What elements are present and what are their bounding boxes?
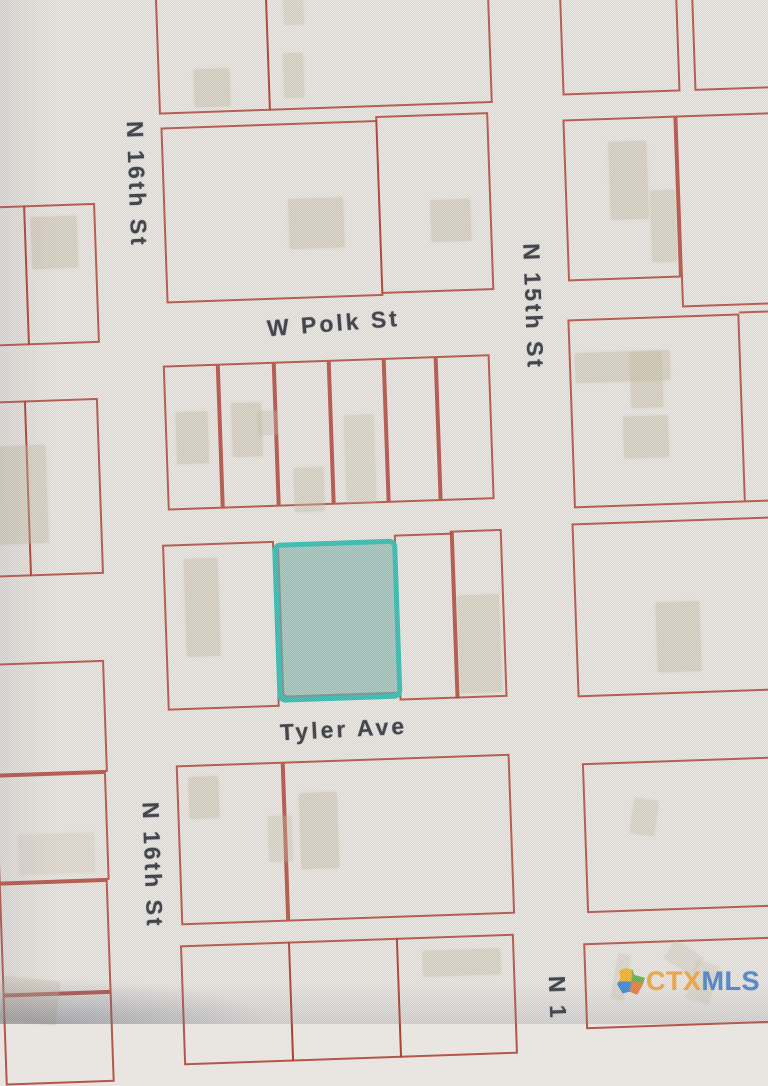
building-footprint [630,351,664,408]
highlighted-subject-parcel [272,539,403,703]
building-footprint [18,832,95,875]
building-footprint [283,53,305,99]
street-label: Tyler Ave [279,713,407,747]
building-footprint [30,216,78,270]
texas-state-icon [617,968,645,995]
building-footprint [629,798,659,837]
building-footprint [175,411,209,464]
parcel-boundary [160,120,383,303]
watermark-mls-text: MLS [702,966,761,997]
parcel-line-segment [746,499,768,503]
parcel-line-segment [739,310,768,314]
parcel-boundary [558,0,680,96]
street-label: N 15th St [517,243,548,371]
parcel-boundary [567,313,745,508]
building-footprint [0,976,60,1026]
parcel-boundary [180,942,294,1066]
street-label: W Polk St [266,305,401,342]
watermark-ctx-text: CTX [646,966,702,997]
building-footprint [283,0,304,25]
building-footprint [299,792,340,869]
building-footprint [344,414,377,503]
parcel-boundary [0,660,108,776]
parcel-boundary [384,356,441,503]
building-footprint [184,558,221,657]
parcel-boundary [675,112,768,308]
building-footprint [293,467,325,512]
building-footprint [623,415,669,459]
mls-parcel-map-photo: { "map": { "background_color": "#e9e6e1"… [0,0,768,1024]
street-label: N 16th St [136,802,167,930]
building-footprint [0,445,49,545]
building-footprint [288,197,345,249]
street-label: N 1 [543,975,572,1021]
parcel-boundary [690,0,768,91]
parcel-boundary [436,354,495,501]
building-footprint [650,190,677,263]
parcel-boundary [582,755,768,913]
building-footprint [188,776,219,819]
building-footprint [193,68,230,107]
parcel-boundary [162,541,280,711]
building-footprint [655,601,701,672]
building-footprint [422,948,501,977]
parcel-boundary [288,938,402,1062]
building-footprint [608,141,649,220]
ctxmls-watermark: CTXMLS [617,966,760,997]
building-footprint [268,815,294,862]
building-footprint [430,199,471,242]
street-label: N 16th St [121,121,152,249]
building-footprint [457,594,502,693]
building-footprint [257,411,278,436]
parcel-map-layer: N 16th StN 15th StW Polk StTyler AveN 16… [0,0,768,1037]
